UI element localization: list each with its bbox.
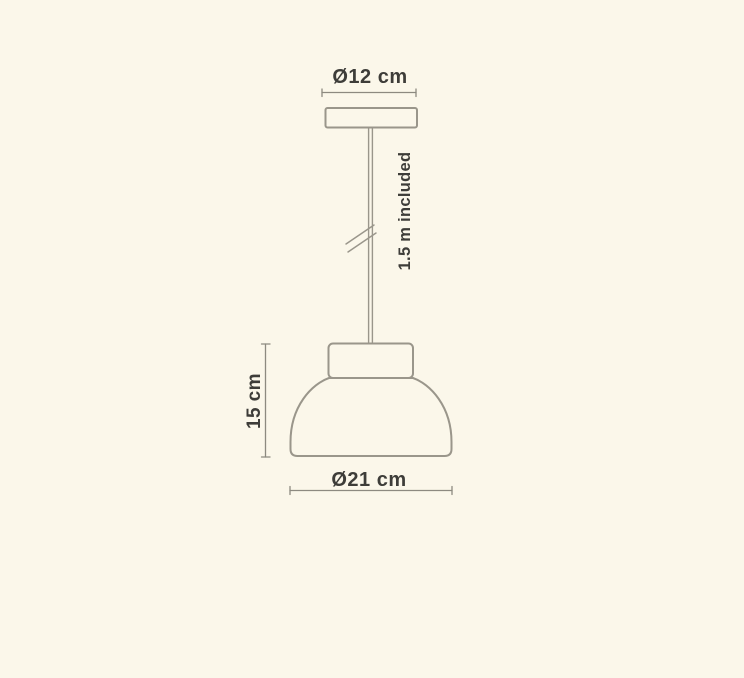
shade-height-label: 15 cm xyxy=(244,373,265,429)
cable-break-icon xyxy=(346,225,376,252)
shade-diameter-label: Ø21 cm xyxy=(331,469,406,491)
lamp-shade xyxy=(291,378,452,456)
ceiling-canopy xyxy=(326,108,418,128)
canopy-diameter-label: Ø12 cm xyxy=(332,66,407,88)
pendant-lamp-dimension-diagram: Ø12 cm 1.5 m included 15 cm xyxy=(0,0,744,678)
cable-length-label: 1.5 m included xyxy=(396,152,414,271)
canopy-diameter-dimension xyxy=(322,89,416,97)
diagram-canvas: Ø12 cm 1.5 m included 15 cm xyxy=(0,0,744,678)
lamp-neck xyxy=(329,344,414,379)
